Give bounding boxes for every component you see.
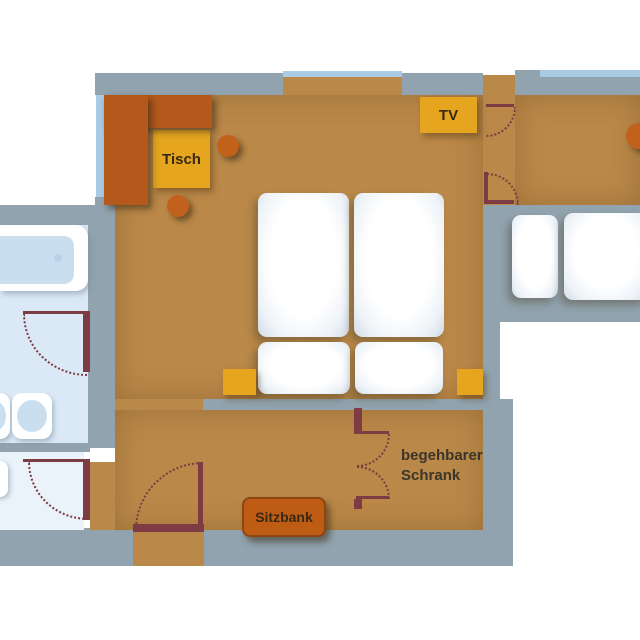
bed-mattress-left [258, 193, 349, 337]
stool-1 [217, 135, 239, 157]
table-label: Tisch [162, 151, 201, 168]
tv: TV [420, 97, 477, 133]
nightstand-right [457, 369, 483, 395]
window-left [96, 77, 104, 197]
bed-pillow-left [258, 342, 350, 394]
bed-mattress-right [354, 193, 444, 337]
bed-pillow-right [355, 342, 443, 394]
wall-tv [402, 73, 483, 97]
right-bed-mattress [564, 213, 640, 300]
wall-top-left [95, 73, 283, 95]
wall-bathroom-right [88, 205, 115, 448]
floor-right-room [515, 95, 640, 205]
bench: Sitzbank [242, 497, 326, 537]
bathtub-drain [54, 254, 62, 262]
bench-label: Sitzbank [255, 509, 313, 525]
floor-plan: Tisch TV Sitzbank begehbarer Schrank [0, 0, 640, 640]
wall-right-room-top [540, 77, 640, 95]
tv-label: TV [439, 107, 458, 124]
floor-corridor-west [90, 462, 115, 530]
toilet [0, 461, 8, 497]
sink-right-bowl [17, 400, 47, 432]
table: Tisch [153, 130, 210, 188]
bathtub-basin [0, 236, 74, 284]
floor-window-niche [283, 77, 402, 95]
corner-sofa-side [104, 95, 148, 205]
floor-entry-alcove [133, 532, 204, 566]
wall-right-corner [515, 70, 540, 97]
closet-wall-lower [354, 499, 362, 509]
right-bed-pillow [512, 215, 558, 298]
wall-right-vertical [483, 205, 500, 410]
nightstand-left [223, 369, 256, 395]
floor-corridor-gap [115, 399, 203, 410]
stool-2 [167, 195, 189, 217]
walkin-closet-label: begehbarer Schrank [401, 446, 501, 487]
